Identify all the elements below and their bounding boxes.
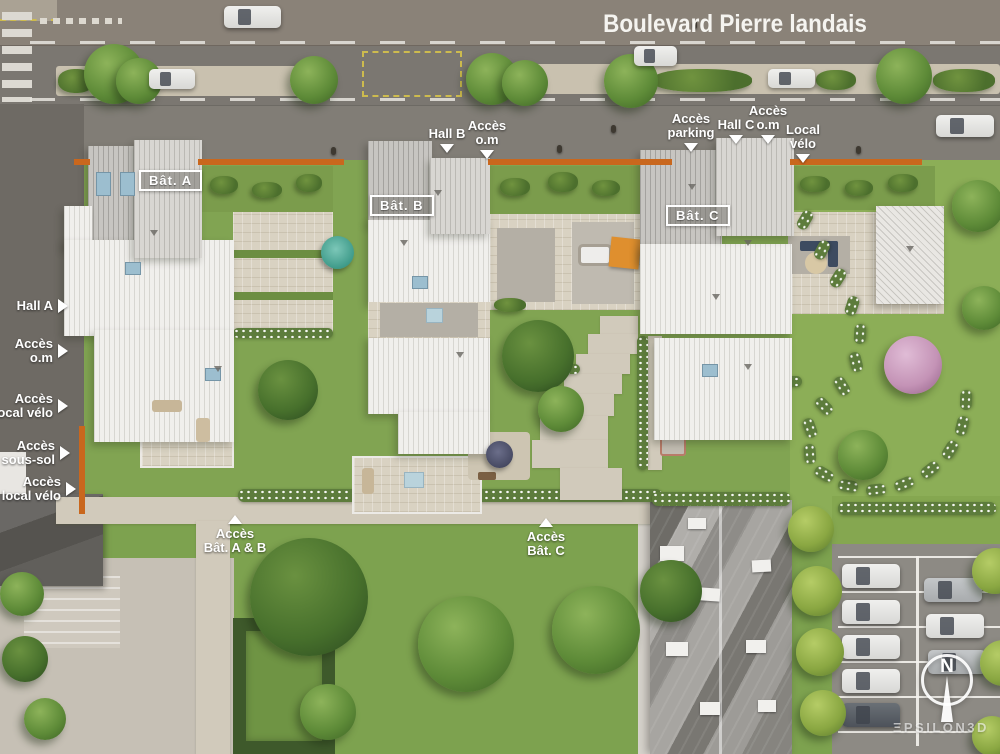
tree bbox=[290, 56, 338, 104]
flower-hedge bbox=[960, 390, 973, 410]
stepped-path bbox=[588, 334, 638, 354]
stepped-path bbox=[576, 354, 630, 374]
roof-vent bbox=[744, 240, 752, 250]
label-acces-local-velo-top: Accès local vélo bbox=[0, 392, 70, 420]
label-acces-bat-ab: Accès Bât. A & B bbox=[195, 515, 275, 555]
bush bbox=[252, 182, 282, 198]
parasol bbox=[486, 441, 513, 468]
skylight bbox=[412, 276, 428, 289]
right-arrow-icon bbox=[60, 446, 70, 460]
label-text: local vélo bbox=[0, 406, 53, 420]
street-name: Boulevard Pierre landais bbox=[582, 10, 888, 39]
label-acces-om-top: Accès o.m bbox=[452, 119, 522, 159]
building-b-block bbox=[368, 336, 490, 414]
tree bbox=[0, 572, 44, 616]
building-b-block bbox=[398, 412, 490, 454]
car bbox=[924, 578, 982, 602]
compass-needle bbox=[941, 676, 953, 722]
up-arrow-icon bbox=[539, 518, 553, 527]
bike-lane-dots bbox=[40, 18, 122, 24]
tree bbox=[2, 636, 48, 682]
tree bbox=[250, 538, 368, 656]
roof-vent bbox=[906, 246, 914, 256]
outdoor-sofa bbox=[152, 400, 182, 412]
roof-vent bbox=[434, 190, 442, 200]
play-square bbox=[609, 237, 642, 270]
label-text: Bât. C bbox=[506, 544, 586, 558]
pool bbox=[404, 472, 424, 488]
label-text: Accès bbox=[733, 104, 803, 118]
outdoor-sofa bbox=[196, 418, 210, 442]
roof-vent bbox=[712, 294, 720, 304]
car bbox=[768, 69, 815, 88]
site-plan: Boulevard Pierre landais Bât. A Bât. B B… bbox=[0, 0, 1000, 754]
building-c-block bbox=[654, 338, 792, 440]
label-text: Accès bbox=[0, 337, 53, 351]
flower-hedge bbox=[233, 328, 333, 338]
tree bbox=[788, 506, 834, 552]
label-text: sous-sol bbox=[0, 453, 55, 467]
label-text: local vélo bbox=[0, 489, 61, 503]
building-a-badge: Bât. A bbox=[139, 170, 202, 191]
tree bbox=[792, 566, 842, 616]
compass-north-letter: N bbox=[940, 656, 954, 678]
right-arrow-icon bbox=[58, 344, 68, 358]
car bbox=[926, 614, 984, 638]
accent-line bbox=[198, 159, 344, 165]
bush bbox=[816, 70, 856, 90]
outdoor-sofa bbox=[362, 468, 374, 494]
label-text: Accès bbox=[0, 475, 61, 489]
tree bbox=[258, 360, 318, 420]
label-local-velo: Local vélo bbox=[768, 123, 838, 163]
roof-vent bbox=[744, 364, 752, 374]
flower-hedge bbox=[803, 444, 816, 465]
roof-vent bbox=[150, 230, 158, 240]
accent-line bbox=[74, 159, 90, 165]
dining-table bbox=[581, 247, 609, 263]
bush bbox=[494, 298, 526, 312]
car bbox=[936, 115, 994, 137]
pool bbox=[426, 308, 443, 323]
planter bbox=[233, 250, 333, 258]
dormer bbox=[666, 642, 688, 656]
crosswalk bbox=[2, 12, 32, 102]
skylight bbox=[702, 364, 718, 377]
dormer bbox=[758, 700, 776, 712]
dormer bbox=[746, 640, 766, 653]
dormer bbox=[700, 702, 720, 715]
tree bbox=[552, 586, 640, 674]
bush bbox=[210, 176, 238, 194]
right-arrow-icon bbox=[58, 299, 68, 313]
stepped-path bbox=[600, 316, 638, 334]
label-text: Local bbox=[768, 123, 838, 137]
bush bbox=[845, 180, 873, 196]
flower-hedge bbox=[652, 492, 790, 506]
car bbox=[224, 6, 281, 28]
compass-icon: N bbox=[921, 654, 973, 706]
bush bbox=[888, 174, 918, 192]
dormer bbox=[688, 518, 706, 529]
delivery-zone-marking bbox=[362, 51, 462, 97]
flower-hedge bbox=[838, 502, 996, 515]
car bbox=[634, 46, 677, 66]
roof-vent bbox=[456, 352, 464, 362]
skylight bbox=[125, 262, 141, 275]
label-text: Hall A bbox=[0, 299, 53, 313]
label-hall-a: Hall A bbox=[0, 299, 70, 313]
car bbox=[842, 703, 900, 727]
path bbox=[196, 521, 230, 754]
label-text: Accès bbox=[506, 530, 586, 544]
car bbox=[842, 669, 900, 693]
tree bbox=[838, 430, 888, 480]
building-a-block bbox=[134, 140, 202, 258]
label-text: o.m bbox=[452, 133, 522, 147]
tree bbox=[876, 48, 932, 104]
skylight bbox=[96, 172, 111, 196]
building-c-badge: Bât. C bbox=[666, 205, 730, 226]
car bbox=[149, 69, 195, 89]
bush bbox=[933, 69, 995, 92]
bush bbox=[800, 176, 830, 192]
brand-watermark: ΞPSILON3D bbox=[893, 720, 989, 735]
building-a-block bbox=[94, 330, 234, 442]
roof-vent bbox=[688, 184, 696, 194]
pedestrian bbox=[331, 147, 336, 155]
bush bbox=[592, 180, 620, 196]
bench bbox=[478, 472, 496, 480]
flower-hedge bbox=[853, 324, 866, 345]
car bbox=[842, 600, 900, 624]
tree bbox=[300, 684, 356, 740]
label-text: Accès bbox=[452, 119, 522, 133]
tree bbox=[502, 320, 574, 392]
building-c-block bbox=[640, 244, 792, 334]
accent-line bbox=[488, 159, 672, 165]
bush bbox=[500, 178, 530, 196]
roof-vent bbox=[400, 240, 408, 250]
tree bbox=[952, 180, 1000, 232]
tree bbox=[418, 596, 514, 692]
accent-line bbox=[79, 426, 85, 514]
skylight bbox=[120, 172, 135, 196]
lane-marking bbox=[30, 41, 1000, 44]
paved-patio bbox=[497, 228, 555, 302]
up-arrow-icon bbox=[228, 515, 242, 524]
label-text: o.m bbox=[0, 351, 53, 365]
tree bbox=[24, 698, 66, 740]
label-text: Accès bbox=[0, 392, 53, 406]
car bbox=[842, 635, 900, 659]
down-arrow-icon bbox=[796, 154, 810, 163]
down-arrow-icon bbox=[684, 143, 698, 152]
right-arrow-icon bbox=[58, 399, 68, 413]
tree bbox=[538, 386, 584, 432]
bush bbox=[296, 174, 322, 192]
label-acces-om-left: Accès o.m bbox=[0, 337, 70, 365]
blossom-tree bbox=[884, 336, 942, 394]
tree bbox=[800, 690, 846, 736]
dormer bbox=[660, 546, 684, 561]
building-b-badge: Bât. B bbox=[370, 195, 434, 216]
down-arrow-icon bbox=[480, 150, 494, 159]
planter bbox=[233, 292, 333, 300]
label-text: vélo bbox=[768, 137, 838, 151]
label-acces-local-velo-bottom: Accès local vélo bbox=[0, 475, 78, 503]
tree bbox=[796, 628, 844, 676]
dormer bbox=[752, 560, 772, 573]
flower-hedge bbox=[637, 336, 648, 470]
pedestrian bbox=[611, 125, 616, 133]
pedestrian bbox=[557, 145, 562, 153]
right-arrow-icon bbox=[66, 482, 76, 496]
label-text: Accès bbox=[0, 439, 55, 453]
label-text: Bât. A & B bbox=[195, 541, 275, 555]
tree bbox=[962, 286, 1000, 330]
terrace bbox=[233, 212, 333, 332]
bush bbox=[548, 172, 578, 192]
parking-divider-line bbox=[916, 556, 919, 746]
tree bbox=[640, 560, 702, 622]
tree bbox=[502, 60, 548, 106]
label-acces-sous-sol: Accès sous-sol bbox=[0, 439, 72, 467]
roof-vent bbox=[214, 366, 222, 376]
stepped-path bbox=[532, 440, 608, 468]
car bbox=[842, 564, 900, 588]
roof-ridge bbox=[719, 500, 722, 754]
path bbox=[560, 468, 622, 500]
parasol bbox=[321, 236, 354, 269]
bush bbox=[652, 69, 752, 92]
dormer bbox=[700, 587, 721, 601]
label-text: Accès bbox=[195, 527, 275, 541]
label-acces-bat-c: Accès Bât. C bbox=[506, 518, 586, 558]
pedestrian bbox=[856, 146, 861, 154]
